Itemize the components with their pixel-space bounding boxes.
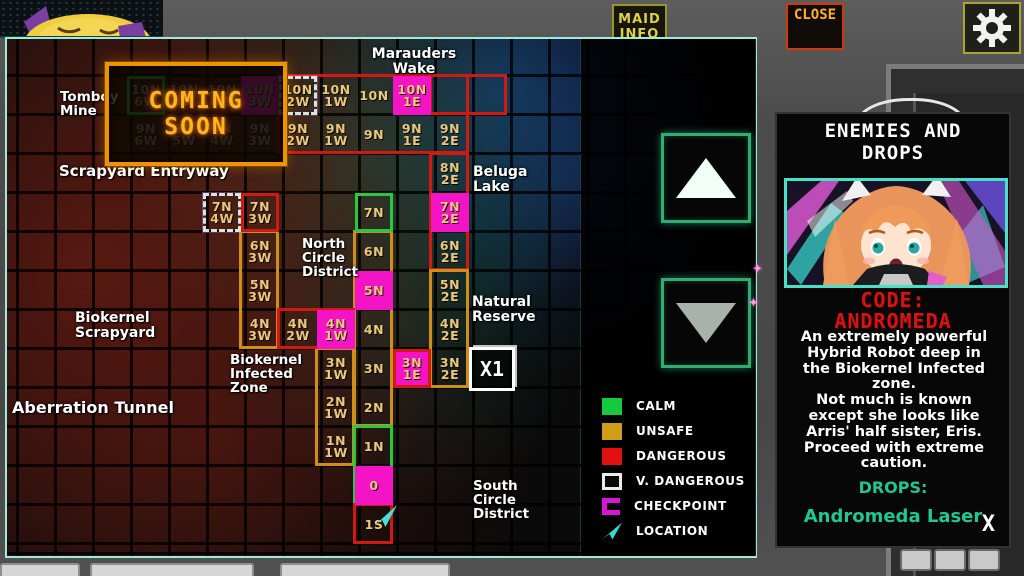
legend-label: V. DANGEROUS — [636, 474, 745, 488]
area-label: Biokernel Scrapyard — [75, 311, 155, 340]
legend-item-dangerous: DANGEROUS — [602, 447, 745, 465]
legend-item-calm: CALM — [602, 397, 745, 415]
description-line: Proceed with extreme — [783, 441, 1005, 457]
dangerous-swatch-icon — [602, 448, 622, 465]
boss-marker-label: X1 — [480, 357, 504, 381]
map-cell-4N-1W: 4N1W — [317, 310, 355, 349]
map-cell-9N-2E: 9N2E — [431, 115, 469, 154]
area-label: South Circle District — [473, 479, 529, 522]
location-swatch-icon — [602, 523, 622, 540]
area-label: North Circle District — [302, 237, 358, 280]
door-tile — [968, 549, 1000, 571]
description-line: zone. — [783, 377, 1005, 393]
map-cell-1N: 1N — [355, 427, 393, 466]
area-label: Beluga Lake — [473, 165, 527, 194]
drops-label: DROPS: — [777, 478, 1009, 497]
map-cell-1S: 1S — [355, 505, 393, 544]
boss-marker-x1: X1 — [469, 347, 515, 391]
panel-title: ENEMIES AND DROPS — [777, 120, 1009, 164]
area-label: Biokernel Infected Zone — [230, 353, 302, 396]
map-cell-8N-2E: 8N2E — [431, 154, 469, 193]
map-cell-3N-1W: 3N1W — [317, 349, 355, 388]
map-cell-10N: 10N — [355, 76, 393, 115]
legend-label: CHECKPOINT — [634, 499, 727, 513]
description-line: Arris' half sister, Eris. — [783, 425, 1005, 441]
door-tile — [934, 549, 966, 571]
up-arrow-icon — [676, 158, 736, 198]
map-cell-3N: 3N — [355, 349, 393, 388]
character-portrait — [0, 0, 163, 38]
close-button-label: CLOSE — [794, 7, 836, 23]
area-label: Aberration Tunnel — [12, 400, 174, 417]
map-cell-9N-1W: 9N1W — [317, 115, 355, 154]
map-cell-7N-2E: 7N2E — [431, 193, 469, 232]
map-cell-10N-1W: 10N1W — [317, 76, 355, 115]
map-cell-7N-4W: 7N4W — [203, 193, 241, 232]
map-cell-5N-2E: 5N2E — [431, 271, 469, 310]
map-cell-7N: 7N — [355, 193, 393, 232]
enemy-description: An extremely powerfulHybrid Robot deep i… — [783, 330, 1005, 472]
panel-title-line1: ENEMIES AND — [777, 120, 1009, 142]
railing-segment — [280, 563, 450, 576]
map-cell-9N: 9N — [355, 115, 393, 154]
map-cell-4N-2E: 4N2E — [431, 310, 469, 349]
coming-soon-banner: COMING SOON — [105, 62, 287, 166]
vdangerous-swatch-icon — [602, 473, 622, 490]
railing-segment — [0, 563, 80, 576]
drop-item-name: Andromeda Laser — [777, 506, 1009, 527]
description-line: the Biokernel Infected — [783, 362, 1005, 378]
legend-item-location: LOCATION — [602, 522, 745, 540]
maid-portrait-art — [0, 0, 163, 38]
map-cell-2N-1W: 2N1W — [317, 388, 355, 427]
description-line: caution. — [783, 456, 1005, 472]
down-arrow-icon — [676, 303, 736, 343]
scroll-down-button[interactable] — [661, 278, 751, 368]
gear-icon — [972, 8, 1012, 48]
enemy-code-name: CODE: ANDROMEDA — [777, 290, 1009, 332]
map-legend: CALMUNSAFEDANGEROUSV. DANGEROUSCHECKPOIN… — [602, 397, 745, 540]
sparkle-icon: ✦ — [752, 262, 763, 277]
legend-item-vdangerous: V. DANGEROUS — [602, 472, 745, 490]
map-cell-6N-2E: 6N2E — [431, 232, 469, 271]
enemy-code-line1: CODE: — [777, 290, 1009, 311]
map-cell-5N-3W: 5N3W — [241, 271, 279, 310]
close-button[interactable]: CLOSE — [786, 3, 844, 50]
scroll-up-button[interactable] — [661, 133, 751, 223]
legend-label: LOCATION — [636, 524, 708, 538]
map-cell-4N: 4N — [355, 310, 393, 349]
calm-swatch-icon — [602, 398, 622, 415]
map-cell-1N-1W: 1N1W — [317, 427, 355, 466]
description-line: Not much is known — [783, 393, 1005, 409]
map-cell-3N-2E: 3N2E — [431, 349, 469, 388]
area-label: Marauders Wake — [359, 47, 469, 76]
area-label: Scrapyard Entryway — [59, 164, 229, 180]
enemies-and-drops-panel: ENEMIES AND DROPS — [775, 112, 1011, 548]
map-cell-6N-3W: 6N3W — [241, 232, 279, 271]
checkpoint-swatch-icon — [602, 498, 620, 515]
area-label: Natural Reserve — [472, 295, 536, 324]
world-map-panel: 10N6W10N5W10N4W10N3W10N2W10N1W10N10N1E9N… — [5, 37, 757, 558]
coming-soon-line1: COMING — [148, 88, 243, 114]
map-cell-6N: 6N — [355, 232, 393, 271]
map-cell-2N: 2N — [355, 388, 393, 427]
map-cell-7N-3W: 7N3W — [241, 193, 279, 232]
enemy-portrait-art — [787, 181, 1005, 285]
door-tile — [900, 549, 932, 571]
unsafe-swatch-icon — [602, 423, 622, 440]
map-cell-4N-2W: 4N2W — [279, 310, 317, 349]
game-screen: ✦ ✦ MAID INFO CLOSE — [0, 0, 1024, 576]
coming-soon-line2: SOON — [164, 114, 227, 140]
legend-label: DANGEROUS — [636, 449, 727, 463]
map-cell-9N-1E: 9N1E — [393, 115, 431, 154]
sparkle-icon: ✦ — [748, 296, 759, 311]
description-line: An extremely powerful — [783, 330, 1005, 346]
panel-title-line2: DROPS — [777, 142, 1009, 164]
enemy-image-frame — [784, 178, 1008, 288]
legend-label: CALM — [636, 399, 676, 413]
railing-segment — [90, 563, 254, 576]
description-line: except she looks like — [783, 409, 1005, 425]
map-cell-5N: 5N — [355, 271, 393, 310]
settings-button[interactable] — [963, 2, 1021, 54]
legend-label: UNSAFE — [636, 424, 694, 438]
map-cell-4N-3W: 4N3W — [241, 310, 279, 349]
legend-item-checkpoint: CHECKPOINT — [602, 497, 745, 515]
map-cell-10N-1E: 10N1E — [393, 76, 431, 115]
map-cell-0: 0 — [355, 466, 393, 505]
maid-info-label-line1: MAID — [614, 12, 665, 27]
map-cell-3N-1E: 3N1E — [393, 349, 431, 388]
panel-close-x-button[interactable]: X — [982, 512, 995, 537]
legend-item-unsafe: UNSAFE — [602, 422, 745, 440]
description-line: Hybrid Robot deep in — [783, 346, 1005, 362]
